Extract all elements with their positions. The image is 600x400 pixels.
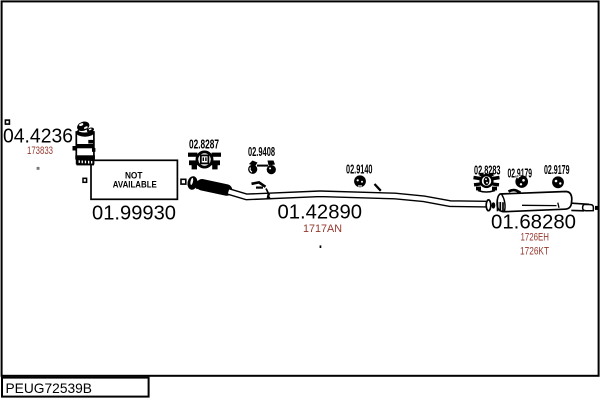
svg-text:02.9140: 02.9140 bbox=[346, 161, 373, 176]
svg-text:01.99930: 01.99930 bbox=[92, 203, 176, 225]
svg-text:1717AN: 1717AN bbox=[303, 223, 342, 235]
svg-text:1726EH: 1726EH bbox=[521, 232, 550, 244]
svg-text:PEUG72539B: PEUG72539B bbox=[6, 380, 93, 396]
svg-text:AVAILABLE: AVAILABLE bbox=[113, 180, 157, 191]
svg-text:1726KT: 1726KT bbox=[520, 246, 549, 258]
svg-text:02.9408: 02.9408 bbox=[248, 144, 275, 159]
svg-text:01.68280: 01.68280 bbox=[491, 212, 576, 234]
svg-text:173833: 173833 bbox=[27, 145, 53, 157]
svg-text:02.9179: 02.9179 bbox=[544, 162, 570, 177]
svg-text:01.42890: 01.42890 bbox=[278, 202, 363, 224]
svg-text:02.8287: 02.8287 bbox=[189, 137, 219, 152]
